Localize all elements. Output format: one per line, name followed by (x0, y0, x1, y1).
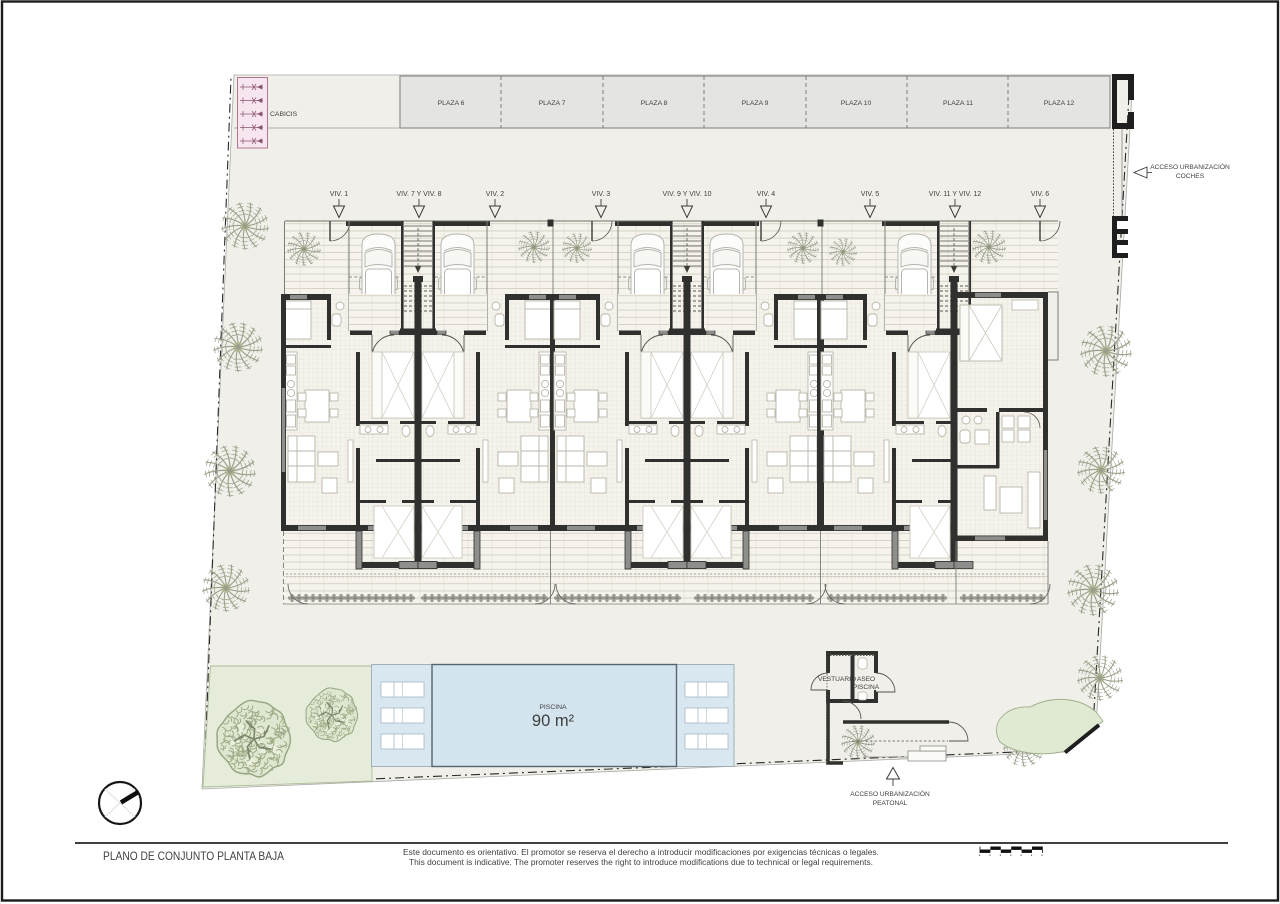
svg-text:Este documento es orientativo.: Este documento es orientativo. El promot… (403, 848, 879, 857)
svg-text:VIV. 5: VIV. 5 (861, 191, 880, 198)
svg-text:VIV. 11 Y VIV. 12: VIV. 11 Y VIV. 12 (929, 191, 982, 198)
svg-text:CABICIS: CABICIS (270, 111, 298, 118)
svg-text:COCHES: COCHES (1176, 173, 1205, 180)
svg-text:PLAZA 8: PLAZA 8 (641, 100, 668, 107)
svg-text:VIV. 2: VIV. 2 (486, 191, 505, 198)
svg-text:VIV. 6: VIV. 6 (1031, 191, 1050, 198)
svg-text:VIV. 7 Y VIV. 8: VIV. 7 Y VIV. 8 (396, 191, 441, 198)
svg-text:ACCESO URBANIZACIÓN: ACCESO URBANIZACIÓN (850, 789, 930, 798)
svg-text:VIV. 9 Y VIV. 10: VIV. 9 Y VIV. 10 (662, 191, 711, 198)
svg-text:PEATONAL: PEATONAL (873, 800, 908, 807)
svg-text:VIV. 3: VIV. 3 (592, 191, 611, 198)
svg-text:PISCINA: PISCINA (539, 704, 567, 711)
svg-text:PLAZA 11: PLAZA 11 (943, 100, 973, 107)
svg-text:90 m²: 90 m² (532, 712, 575, 730)
svg-text:PLAZA 10: PLAZA 10 (841, 100, 872, 107)
svg-text:VESTUARIO: VESTUARIO (818, 676, 856, 683)
svg-text:VIV. 1: VIV. 1 (330, 191, 349, 198)
svg-text:PLAZA 6: PLAZA 6 (438, 100, 465, 107)
svg-text:This document is indicative.: This document is indicative. The promote… (409, 858, 873, 867)
svg-text:ACCESO URBANIZACIÓN: ACCESO URBANIZACIÓN (1150, 162, 1230, 171)
svg-text:PLAZA 7: PLAZA 7 (539, 100, 566, 107)
svg-text:ASEO: ASEO (857, 676, 875, 683)
svg-text:PLANO DE CONJUNTO PLANTA BAJA: PLANO DE CONJUNTO PLANTA BAJA (103, 850, 284, 863)
svg-text:PISCINA: PISCINA (853, 684, 880, 691)
svg-text:PLAZA 9: PLAZA 9 (742, 100, 769, 107)
svg-text:PLAZA 12: PLAZA 12 (1044, 100, 1075, 107)
svg-text:VIV. 4: VIV. 4 (757, 191, 776, 198)
